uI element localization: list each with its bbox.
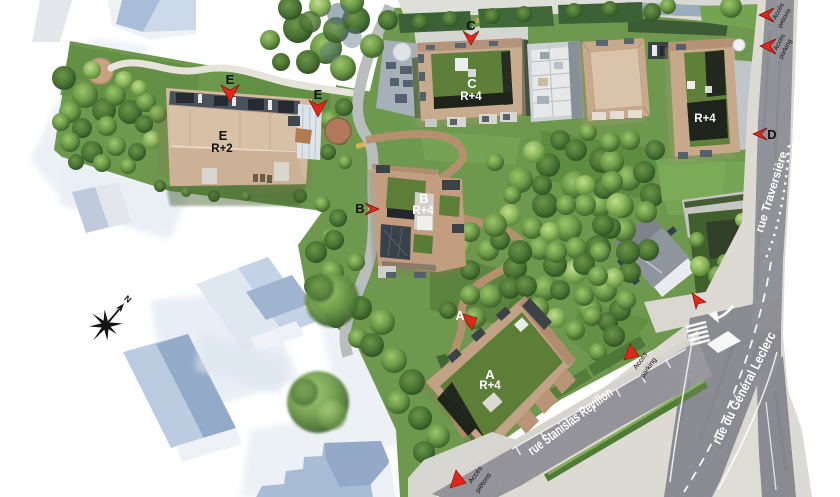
svg-text:A: A [455, 309, 464, 323]
svg-text:B: B [355, 201, 364, 216]
svg-text:E: E [219, 128, 228, 143]
svg-text:B: B [419, 191, 428, 206]
svg-text:R+4: R+4 [694, 113, 716, 125]
svg-text:R+2: R+2 [211, 143, 232, 155]
svg-text:R+4: R+4 [479, 380, 501, 392]
svg-text:C: C [466, 18, 476, 33]
svg-text:C: C [467, 76, 477, 91]
svg-text:E: E [226, 72, 235, 87]
svg-text:E: E [314, 87, 323, 102]
svg-text:R+4: R+4 [412, 205, 434, 217]
svg-text:R+4: R+4 [460, 91, 482, 103]
svg-text:D: D [767, 127, 776, 142]
